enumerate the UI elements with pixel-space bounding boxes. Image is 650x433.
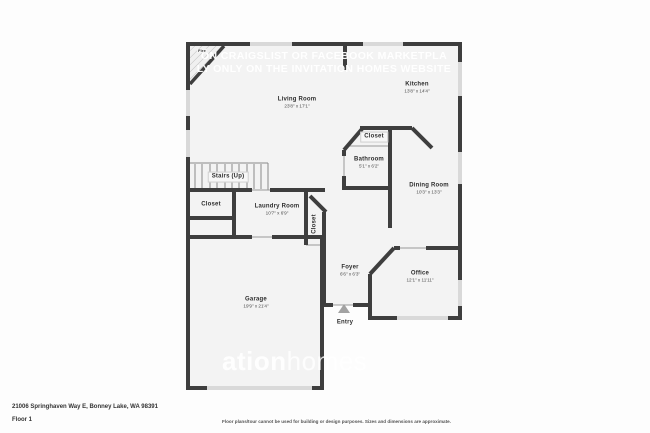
floorplan-page: ON CRAIGSLIST OR FACEBOOK MARKETPLA LY O… xyxy=(0,0,650,433)
property-address: 21006 Springhaven Way E, Bonney Lake, WA… xyxy=(12,404,158,410)
disclaimer-text: Floor plans/tour cannot be used for buil… xyxy=(222,419,451,424)
floor-label: Floor 1 xyxy=(12,417,32,423)
floorplan-drawing xyxy=(0,0,650,433)
